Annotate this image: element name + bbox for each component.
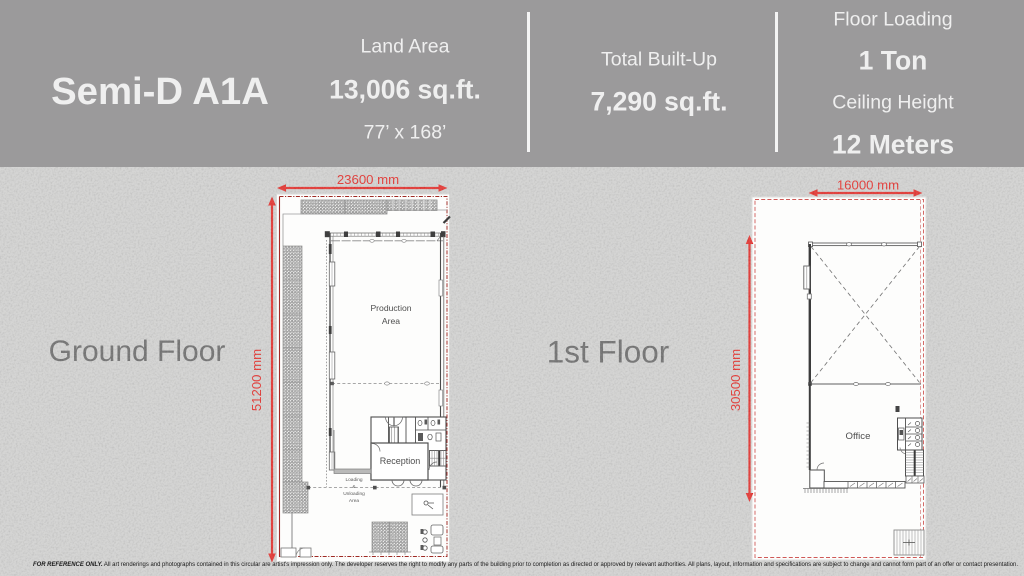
- svg-text:Area: Area: [382, 316, 400, 326]
- svg-text:Office: Office: [846, 431, 871, 442]
- svg-text:Production: Production: [370, 303, 411, 313]
- svg-text:Reception: Reception: [380, 456, 421, 466]
- svg-text:Loading: Loading: [345, 477, 362, 483]
- svg-text:Unloading: Unloading: [343, 491, 365, 497]
- svg-text:Area: Area: [349, 498, 359, 504]
